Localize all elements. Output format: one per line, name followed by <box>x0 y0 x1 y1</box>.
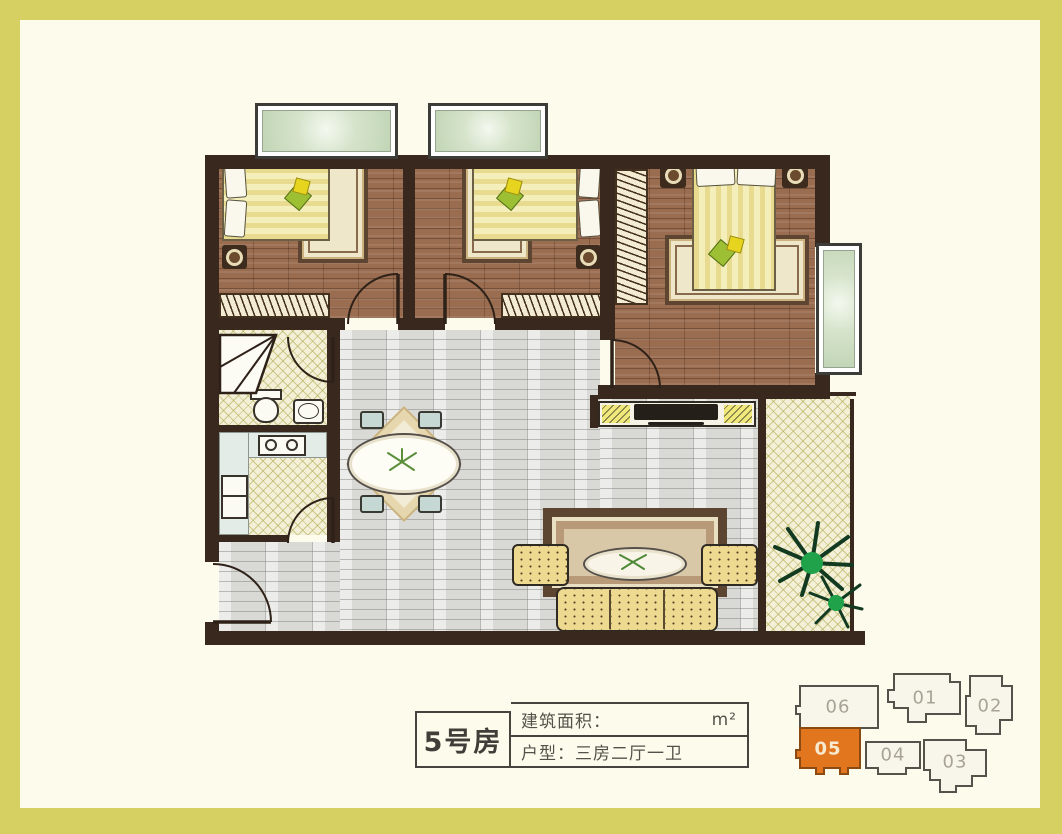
canvas-background: 5号房 建筑面积： m² 户型：三房二厅一卫 <box>20 20 1040 808</box>
lamp-icon <box>787 167 804 184</box>
bedroom2-bay-window <box>428 103 548 159</box>
key-plan-unit-02: 02 <box>978 696 1003 717</box>
wall-bedrooms-a <box>219 318 345 330</box>
fridge <box>221 475 248 519</box>
unit-info-table: 5号房 建筑面积： m² 户型：三房二厅一卫 <box>415 702 749 768</box>
wall-left-upper <box>205 155 219 562</box>
bedroom2-nightstand <box>576 245 601 269</box>
wall-right-upper <box>815 155 830 247</box>
wall-master-bottom <box>598 385 830 399</box>
area-row: 建筑面积： m² <box>511 704 747 735</box>
wall-balcony-left <box>758 399 766 631</box>
key-plan-unit-06: 06 <box>826 697 851 718</box>
dining-chair <box>360 411 384 429</box>
tv <box>634 404 718 420</box>
wall-bath-kitchen-right <box>327 330 340 542</box>
wall-bath-kitchen-divider <box>219 425 327 432</box>
armchair-right <box>701 544 758 586</box>
bedroom1-nightstand <box>222 245 247 269</box>
wall-bed2-master <box>600 169 615 340</box>
master-bay-window <box>816 243 862 375</box>
dining-table <box>347 433 461 495</box>
armchair-left <box>512 544 569 586</box>
bedroom2-wardrobe <box>501 293 612 318</box>
bedroom1-pillow <box>224 199 248 237</box>
bathroom-sink-basin <box>298 403 319 419</box>
master-wardrobe <box>615 169 648 305</box>
tv-stand <box>648 422 704 425</box>
stove-burner <box>286 439 298 451</box>
wall-kitchen-bottom <box>219 535 288 542</box>
wall-balcony-top <box>830 392 856 396</box>
wall-tv-nub <box>590 395 598 428</box>
building-key-plan: 06 01 02 05 04 03 <box>790 662 1040 802</box>
room-number-cell: 5号房 <box>415 711 511 768</box>
room-number: 5号房 <box>424 720 503 759</box>
area-unit: m² <box>712 710 737 730</box>
toilet-bowl <box>253 397 279 423</box>
dining-chair <box>360 495 384 513</box>
wall-bottom <box>205 631 865 645</box>
sofa-divider <box>663 590 665 629</box>
key-plan-unit-03: 03 <box>943 752 968 773</box>
lamp-icon <box>580 249 597 266</box>
key-plan-shapes <box>790 662 1040 802</box>
tv-console-decor <box>602 405 630 423</box>
wall-bed1-bed2 <box>403 169 415 330</box>
wall-balcony-right <box>850 399 854 631</box>
floor-plan <box>200 95 870 653</box>
dining-chair <box>418 495 442 513</box>
wall-bedrooms-c <box>495 318 612 330</box>
sofa <box>556 587 718 632</box>
fridge-divider <box>223 495 246 497</box>
window-glass <box>262 110 391 152</box>
unit-details-cell: 建筑面积： m² 户型：三房二厅一卫 <box>511 702 749 768</box>
lamp-icon <box>665 167 682 184</box>
balcony-floor <box>766 396 850 631</box>
area-label: 建筑面积： <box>521 707 611 732</box>
layout-label: 户型：三房二厅一卫 <box>521 739 683 764</box>
window-glass <box>823 250 855 368</box>
lamp-icon <box>226 249 243 266</box>
key-plan-unit-01: 01 <box>913 688 938 709</box>
bedroom2-pillow <box>578 199 602 237</box>
wall-bedrooms-b <box>398 318 445 330</box>
key-plan-unit-05-highlighted: 05 <box>814 739 841 760</box>
bedroom1-bay-window <box>255 103 398 159</box>
bedroom1-wardrobe <box>219 293 330 318</box>
stove-burner <box>265 439 277 451</box>
tv-console-decor <box>724 405 752 423</box>
layout-row: 户型：三房二厅一卫 <box>511 735 747 766</box>
key-plan-unit-04: 04 <box>881 745 906 766</box>
coffee-table <box>583 547 687 581</box>
window-glass <box>435 110 541 152</box>
entry-floor <box>219 542 340 631</box>
sofa-divider <box>609 590 611 629</box>
bedroom2-bed <box>472 157 578 241</box>
screenshot-frame: 5号房 建筑面积： m² 户型：三房二厅一卫 <box>0 0 1062 834</box>
dining-chair <box>418 411 442 429</box>
